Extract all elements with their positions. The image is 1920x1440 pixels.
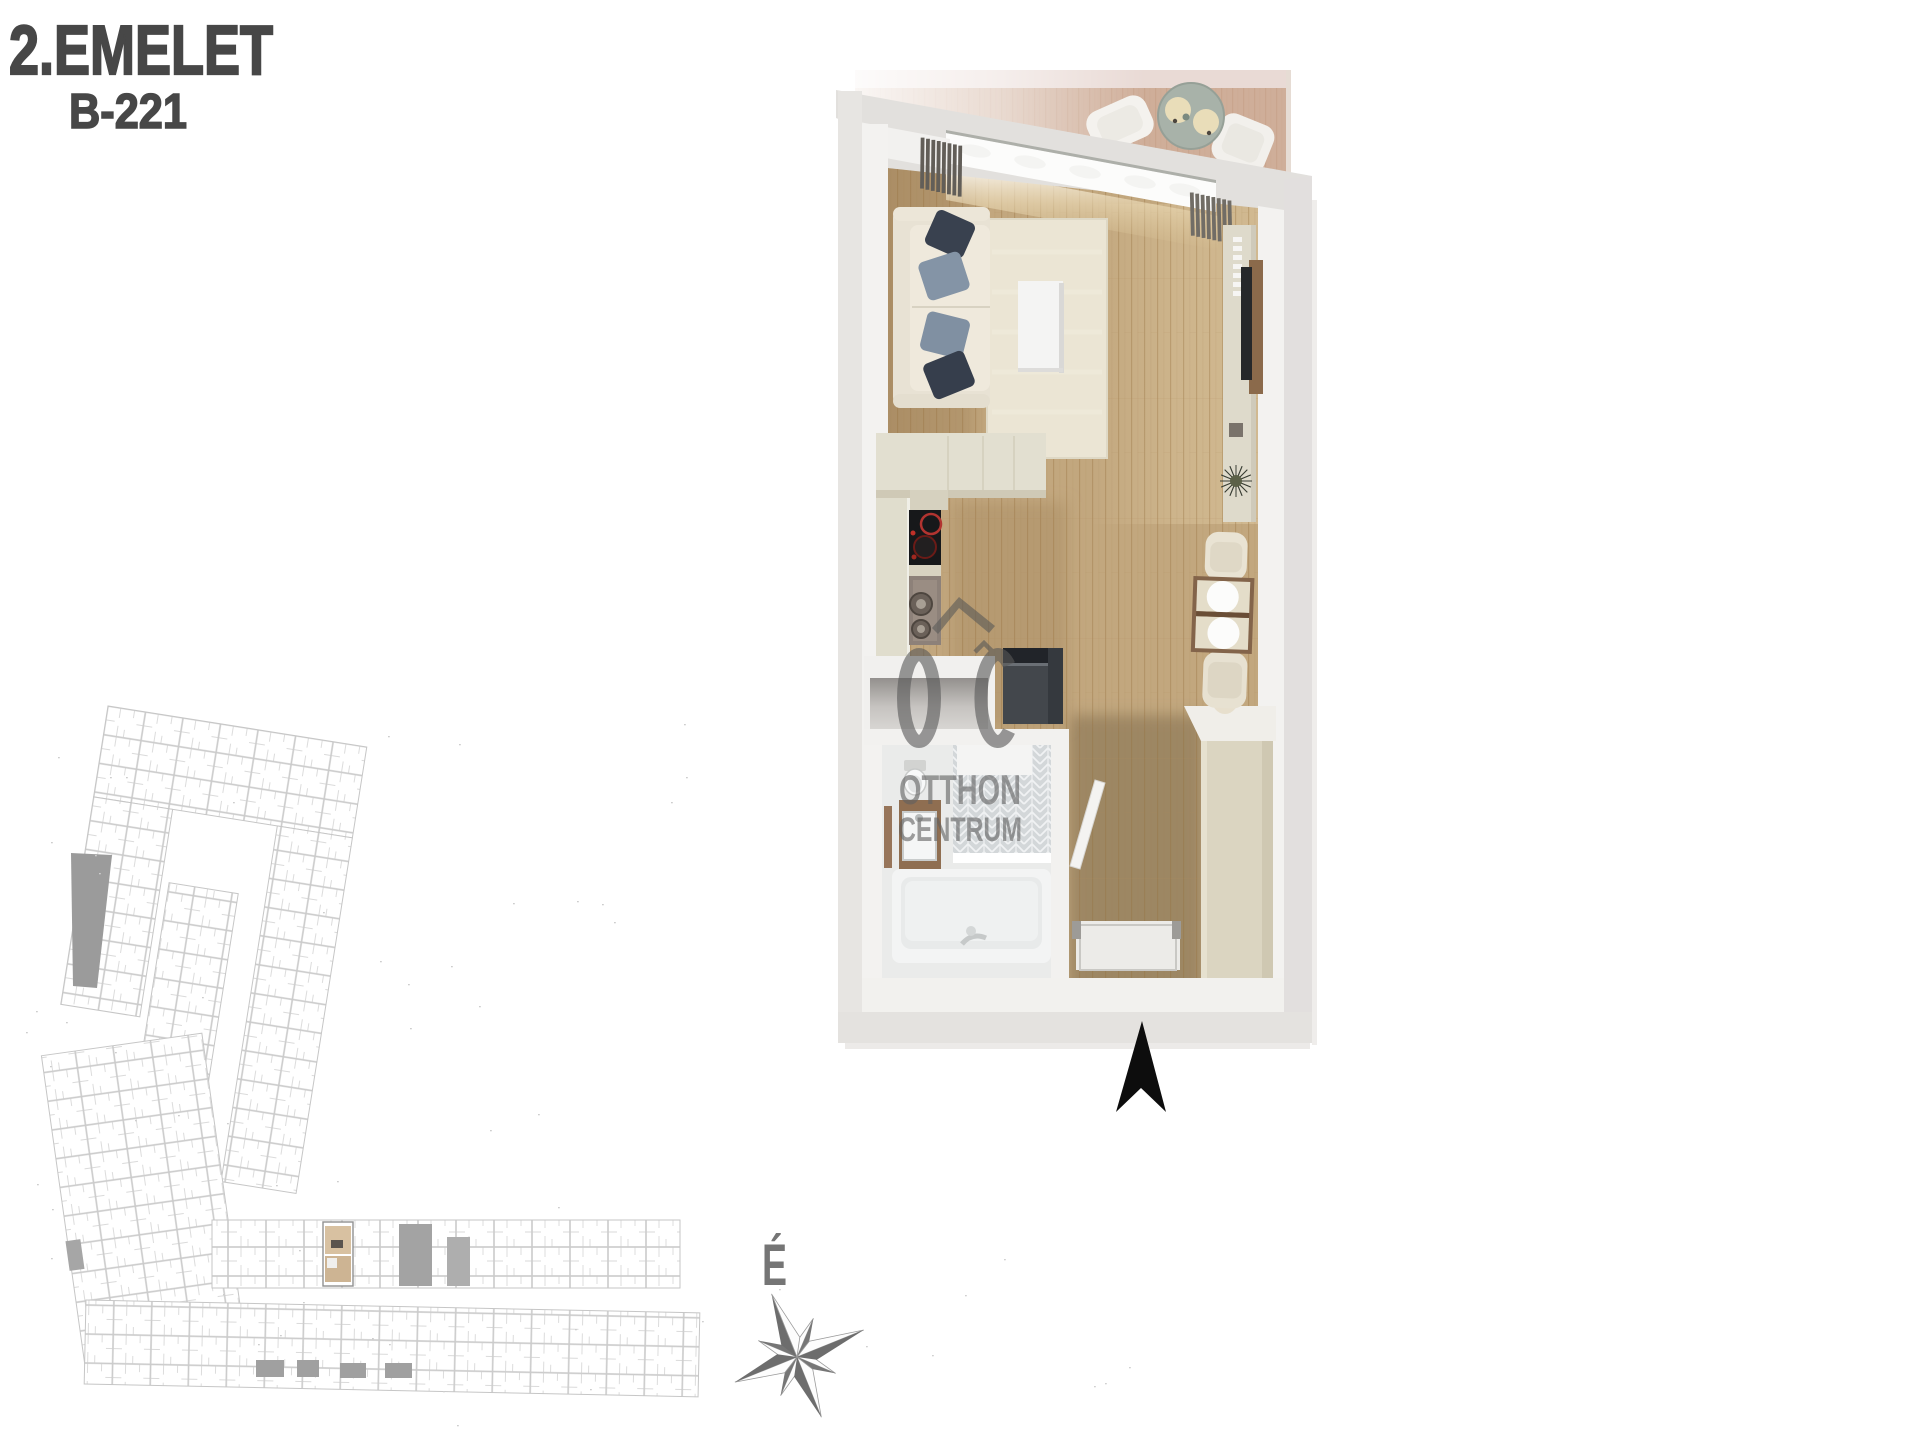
svg-text:OTTHON: OTTHON	[899, 766, 1021, 813]
svg-text:CENTRUM: CENTRUM	[898, 811, 1022, 849]
svg-text:É: É	[762, 1233, 787, 1298]
svg-text:2.EMELET: 2.EMELET	[9, 11, 273, 89]
svg-text:B-221: B-221	[69, 85, 187, 139]
